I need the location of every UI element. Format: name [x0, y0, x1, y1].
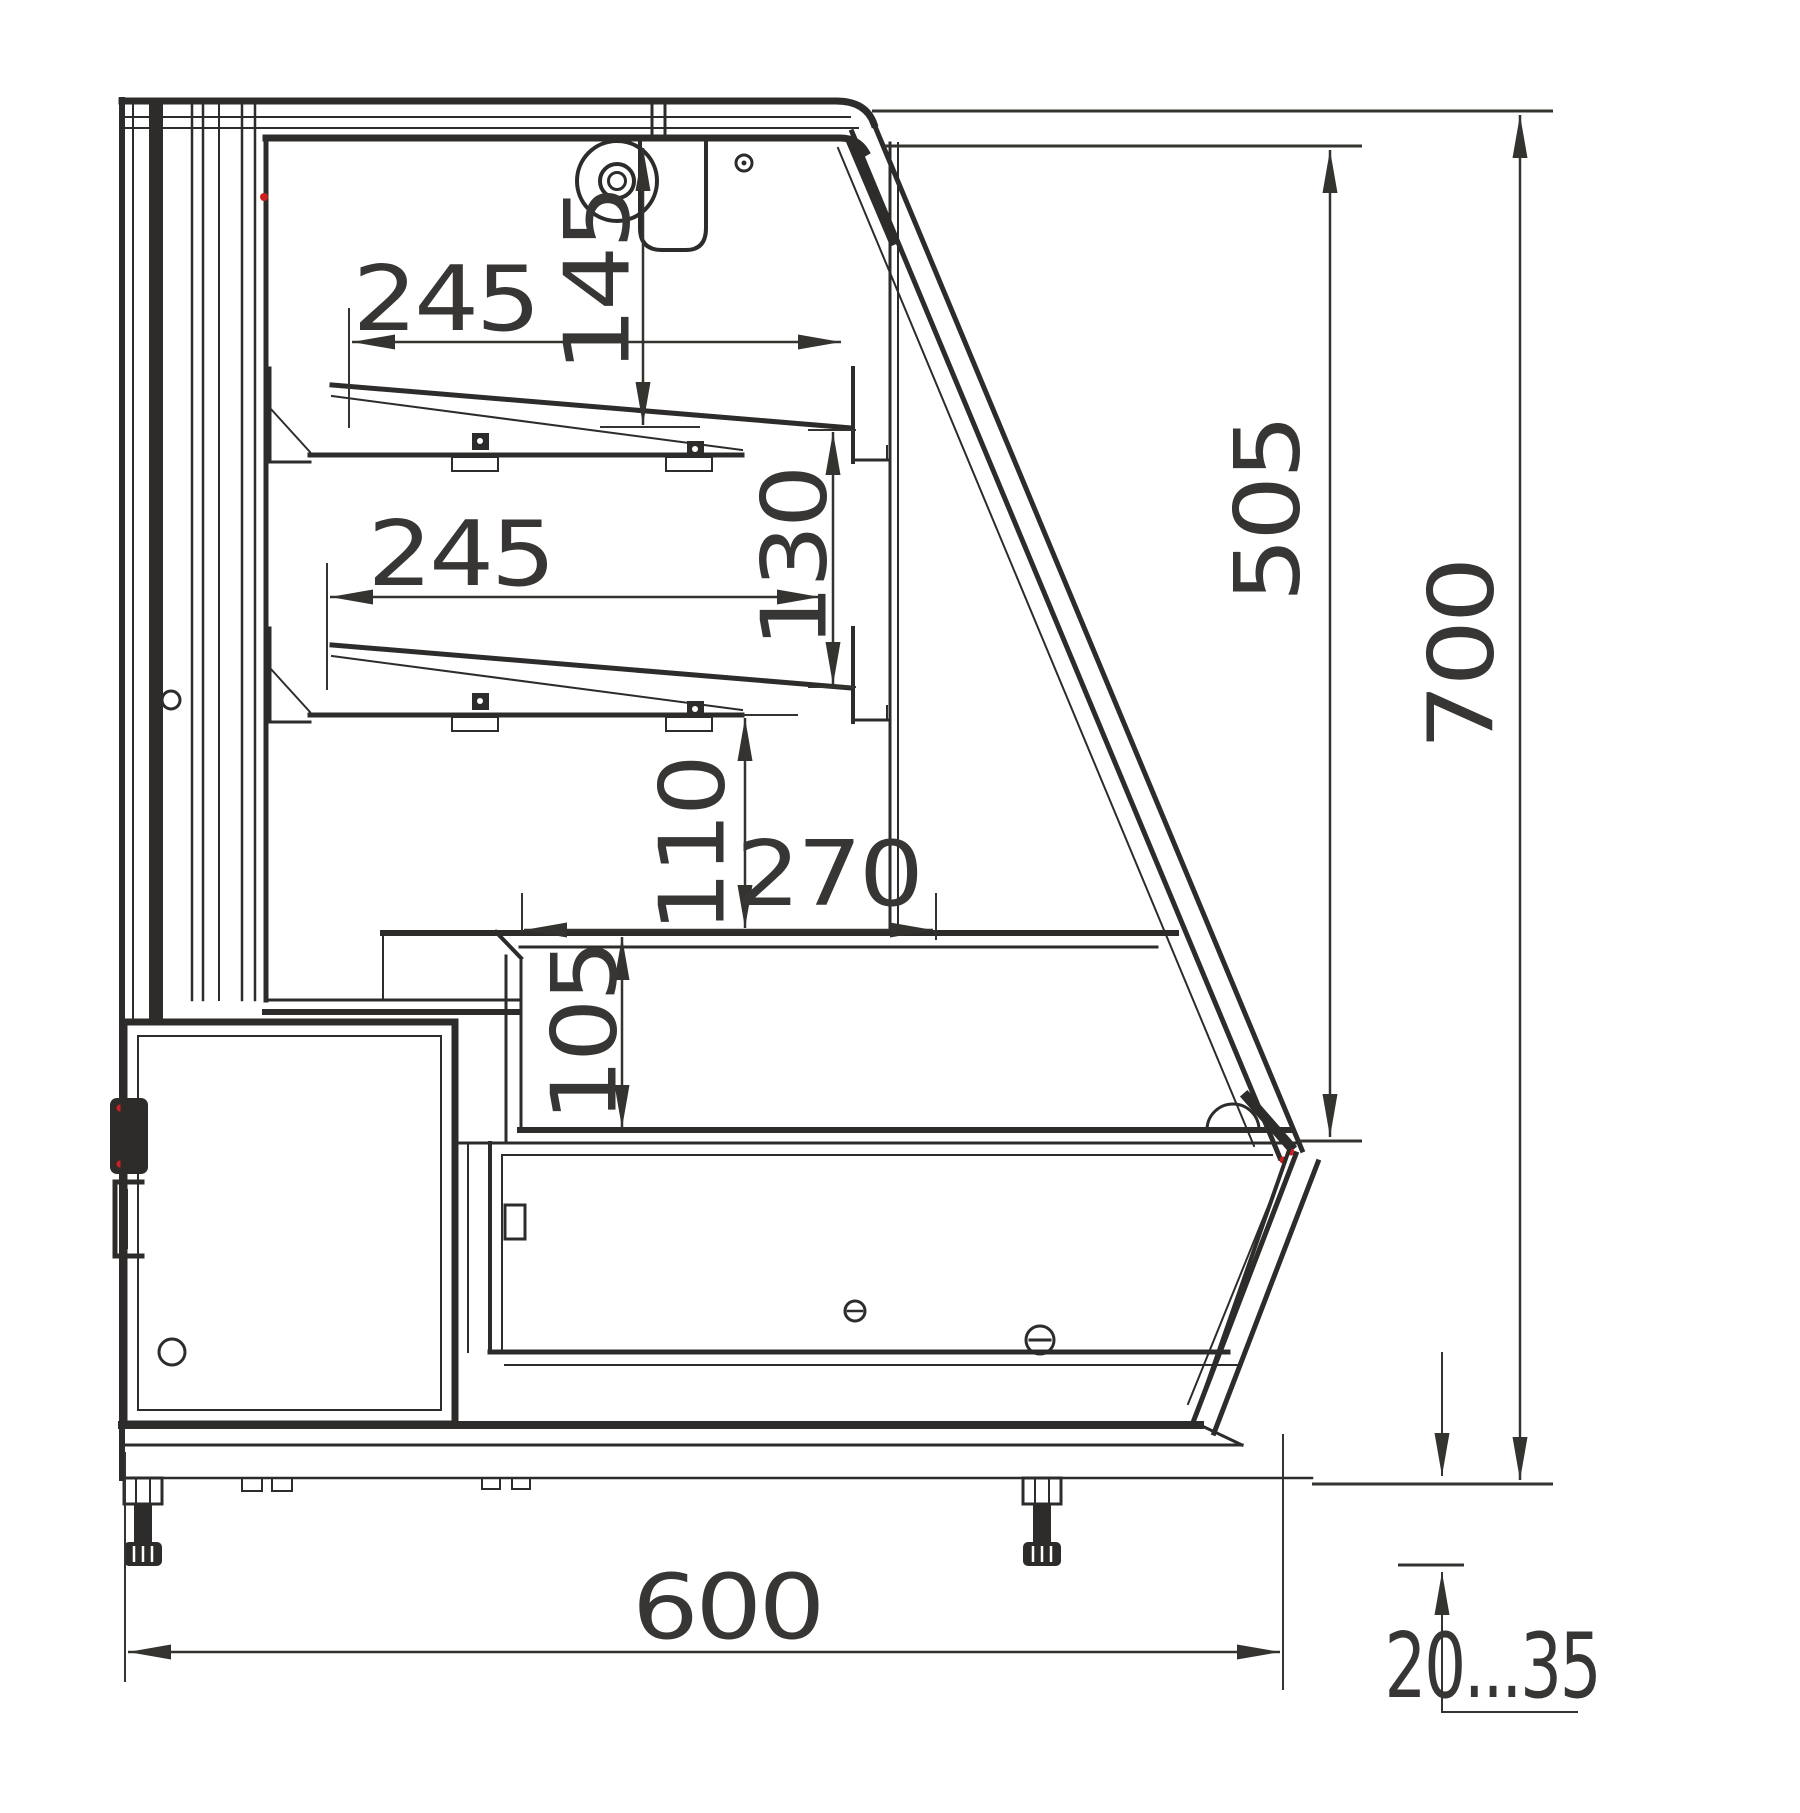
- dim-label: 505: [1216, 418, 1321, 603]
- front-bumper: [1188, 1154, 1318, 1433]
- column-screw: [162, 691, 180, 709]
- wall-clip: [505, 1205, 525, 1239]
- dim-overall-depth: 600: [125, 1434, 1283, 1690]
- base-frame: [122, 1424, 1312, 1491]
- dim-label: 600: [632, 1555, 822, 1660]
- display-case-section-drawing: 245 145 245 130 110 270 105 505: [0, 0, 1800, 1813]
- dim-foot-adjust-range: 20...35: [1385, 1352, 1600, 1719]
- dim-overall-height: 700: [872, 111, 1553, 1484]
- dim-glass-opening-height: 505: [885, 146, 1362, 1141]
- red-marker-dot: [260, 193, 268, 201]
- dim-shelf-spacing: 130: [743, 430, 857, 687]
- dim-label: 145: [546, 188, 651, 373]
- machine-compartment: [124, 1022, 455, 1424]
- dim-label: 130: [743, 468, 848, 648]
- dim-well-height: 105: [533, 937, 638, 1128]
- dim-label: 270: [736, 822, 921, 927]
- inner-partition: [890, 143, 898, 931]
- dim-top-shelf-drop: 145: [546, 148, 701, 427]
- dim-label: 105: [533, 942, 638, 1122]
- left-foot: [124, 1478, 162, 1566]
- dim-label: 110: [641, 758, 746, 933]
- dim-label: 245: [368, 502, 553, 607]
- front-glass-panel: [838, 124, 1302, 1164]
- back-column: [122, 100, 268, 1424]
- lower-compartment: [468, 1143, 1289, 1413]
- right-foot: [1023, 1478, 1061, 1566]
- canopy: [122, 101, 874, 250]
- dim-label: 245: [353, 247, 538, 352]
- compartment-screw: [159, 1339, 185, 1365]
- side-switch: [110, 1098, 148, 1256]
- dim-label: 20...35: [1385, 1614, 1600, 1719]
- dim-label: 700: [1410, 560, 1515, 750]
- shelf-1: [270, 368, 887, 471]
- display-deck-well: [265, 932, 1298, 1143]
